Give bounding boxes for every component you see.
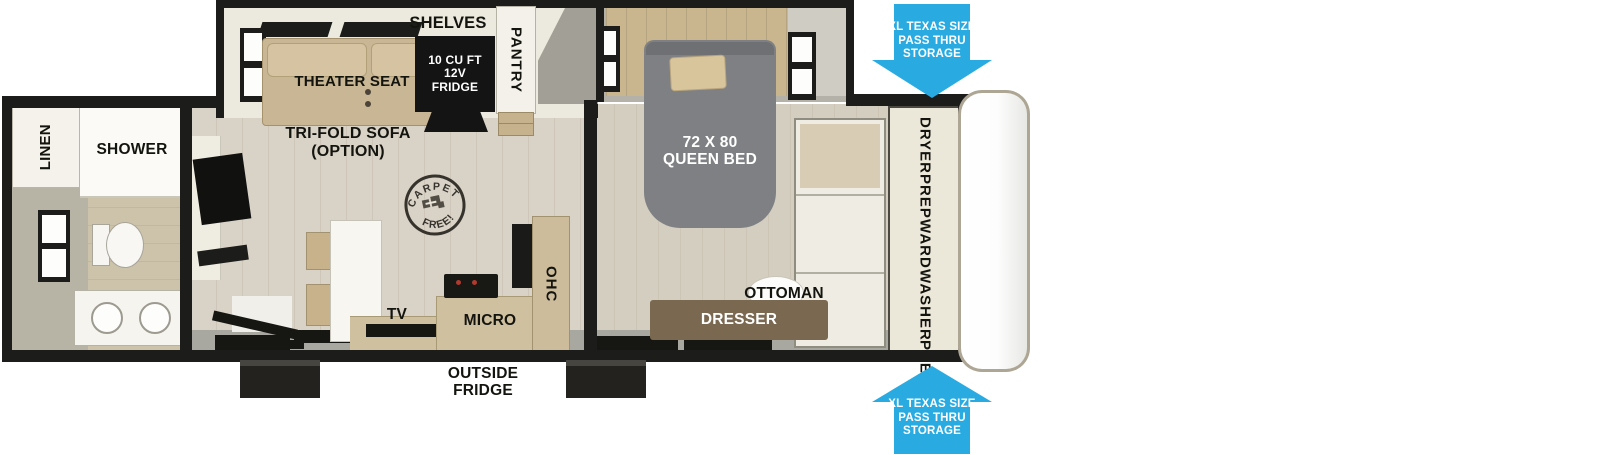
bed-window-right <box>788 32 816 100</box>
bed-type: QUEEN BED <box>644 151 776 168</box>
shelves-label: SHELVES <box>400 14 496 32</box>
entry-door-threshold <box>244 340 304 349</box>
dresser: DRESSER <box>650 300 828 340</box>
seat-back <box>267 43 367 77</box>
pantry-cabinet: PANTRY <box>496 6 536 114</box>
entry-step <box>240 360 320 398</box>
wall-bedroom-divider <box>584 100 597 354</box>
trifold-sofa-label: TRI-FOLD SOFA (OPTION) <box>240 125 456 160</box>
toilet-bowl <box>106 222 144 268</box>
shower-label: SHOWER <box>84 141 180 158</box>
entry-step <box>566 360 646 398</box>
dresser-label: DRESSER <box>701 311 777 328</box>
slide-window-top <box>258 22 333 37</box>
arrow-head-up-icon <box>872 366 992 402</box>
ward-label: WARD <box>917 219 934 269</box>
outside-fridge-label: OUTSIDE FRIDGE <box>428 365 538 399</box>
counter-tv <box>366 324 436 337</box>
trifold-line1: TRI-FOLD SOFA <box>240 125 456 143</box>
tv-label: TV <box>372 306 422 323</box>
carpet-free-icon <box>421 194 444 211</box>
queen-bed: 72 X 80 QUEEN BED <box>644 40 776 228</box>
wall-bath-divider <box>180 100 192 354</box>
front-cap <box>958 90 1030 372</box>
sink <box>91 302 123 334</box>
passthru-arrow-top: XL TEXAS SIZE PASS THRU STORAGE <box>872 4 992 100</box>
bed-size: 72 X 80 <box>644 134 776 151</box>
passthru-arrow-bottom: XL TEXAS SIZE PASS THRU STORAGE <box>872 366 992 454</box>
burner-knob <box>472 280 477 285</box>
front-cap-inner <box>961 93 1027 369</box>
bed-headboard <box>646 42 774 55</box>
queen-bed-label: 72 X 80 QUEEN BED <box>644 134 776 168</box>
wall-bottom <box>2 350 974 362</box>
ohc-label: OHC <box>543 266 560 302</box>
trifold-line2: (OPTION) <box>240 143 456 161</box>
bed-pillow <box>669 55 727 92</box>
passthru-bottom-text: XL TEXAS SIZE PASS THRU STORAGE <box>872 398 992 439</box>
pantry-label: PANTRY <box>508 27 525 93</box>
seat-button <box>365 101 371 107</box>
wall-left <box>2 96 12 360</box>
dryer-prep-label: DRYERPREP <box>917 117 934 219</box>
cooktop <box>444 274 498 298</box>
passthru-top-text: XL TEXAS SIZE PASS THRU STORAGE <box>872 21 992 62</box>
outside-fridge-line2: FRIDGE <box>428 382 538 399</box>
arrow-head-down-icon <box>872 60 992 98</box>
linen-cabinet: LINEN <box>12 106 80 188</box>
burner-knob <box>456 280 461 285</box>
micro-label: MICRO <box>442 312 538 329</box>
bathroom-window <box>38 210 70 282</box>
outside-fridge-line1: OUTSIDE <box>428 365 538 382</box>
bed-window-left <box>600 26 620 92</box>
fridge-label-line2: 12V <box>444 67 466 80</box>
ohc-cabinet: OHC <box>532 216 570 352</box>
wall-tv <box>193 153 252 225</box>
floorplan-canvas: LINEN SHOWER THEATER SEAT SHELVES 10 CU … <box>0 0 1600 455</box>
sink <box>139 302 171 334</box>
pantry-drawers <box>498 112 534 136</box>
black-cabinet <box>512 224 532 288</box>
fridge-12v: 10 CU FT 12V FRIDGE <box>415 36 495 112</box>
carpet-free-stamp: CARPET FREE! <box>396 166 474 244</box>
linen-label: LINEN <box>38 124 55 170</box>
prep-panel: DRYERPREP WARD WASHERPREP <box>888 106 962 352</box>
fridge-label-line3: FRIDGE <box>432 81 479 94</box>
vanity <box>74 290 182 346</box>
